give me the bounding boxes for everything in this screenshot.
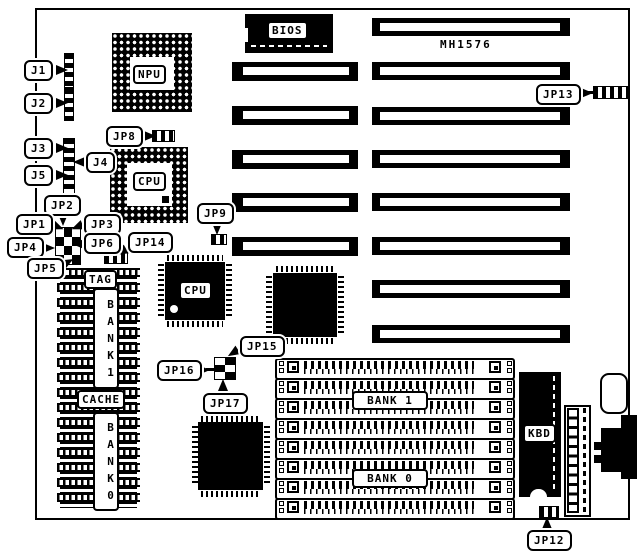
cache-tag-label: TAG <box>84 270 117 289</box>
jp15-jp17-jumper-block[interactable] <box>214 357 236 380</box>
callout-j4: J4 <box>86 151 115 173</box>
callout-pointer-jp13 <box>581 88 593 98</box>
callout-pointer-j4 <box>73 157 85 167</box>
simm-clip-right <box>489 401 501 413</box>
simm-pin-hole <box>507 428 512 433</box>
callout-pointer-jp4 <box>43 243 55 253</box>
qfp-chip2-leads-bottom <box>276 338 334 344</box>
callout-jp17: JP17 <box>203 392 248 414</box>
isa-slot-key <box>380 198 560 206</box>
cache-bank1-label: BANK1 <box>93 288 119 389</box>
simm-pin-hole <box>507 508 512 513</box>
battery-outline <box>600 373 628 414</box>
cpu-qfp-leads-bottom <box>167 321 223 327</box>
simm-pin-hole <box>279 408 284 413</box>
isa-slot-key <box>243 67 349 75</box>
simm-pin-hole <box>279 428 284 433</box>
simm-clip-left <box>287 461 299 473</box>
keyboard-din-connector-body <box>601 428 625 472</box>
simm-pin-hole <box>507 421 512 426</box>
motherboard-layout-diagram: BIOS MH1576 NPU CPU CPU TAG CACHE BANK1 … <box>0 0 637 558</box>
isa-slot-key <box>380 330 560 338</box>
simm-clip-right <box>489 441 501 453</box>
simm-module-pins <box>304 449 474 454</box>
callout-j5: J5 <box>24 164 53 186</box>
isa-slot-right <box>372 193 570 211</box>
callout-j2: J2 <box>24 92 53 114</box>
cpu-qfp-leads-left <box>158 264 164 318</box>
callout-label-j2: J2 <box>24 93 53 114</box>
cpu-qfp-label: CPU <box>179 281 212 300</box>
simm-pin-hole <box>279 508 284 513</box>
callout-jp12: JP12 <box>527 529 572 551</box>
callout-jp4: JP4 <box>7 236 44 258</box>
callout-jp14: JP14 <box>128 231 173 253</box>
isa-slot-right <box>372 325 570 343</box>
callout-j3: J3 <box>24 137 53 159</box>
cpu-socket-label: CPU <box>133 172 166 191</box>
isa-slot-right <box>372 150 570 168</box>
qfp-chip3-leads-bottom <box>201 491 260 497</box>
simm-slot[interactable] <box>275 358 515 380</box>
cpu-qfp-leads-top <box>167 255 223 261</box>
isa-slot-left <box>232 193 358 212</box>
cpu-qfp-leads-right <box>226 264 232 318</box>
isa-slot-right <box>372 280 570 298</box>
callout-pointer-jp6 <box>72 239 84 249</box>
simm-clip-left <box>287 421 299 433</box>
callout-label-jp13: JP13 <box>536 84 581 105</box>
isa-slot-left <box>232 150 358 169</box>
callout-pointer-jp8 <box>144 131 156 141</box>
simm-clip-right <box>489 461 501 473</box>
isa-slot-right <box>372 237 570 255</box>
callout-pointer-j2 <box>56 98 68 108</box>
simm-pin-hole <box>507 441 512 446</box>
callout-label-jp4: JP4 <box>7 237 44 258</box>
simm-pin-hole <box>507 401 512 406</box>
simm-pin-hole <box>507 388 512 393</box>
simm-pin-hole <box>279 441 284 446</box>
callout-jp15: JP15 <box>240 335 285 357</box>
simm-module-chips <box>304 381 474 389</box>
keyboard-din-connector-tab-bottom <box>594 455 603 463</box>
callout-label-jp6: JP6 <box>84 233 121 254</box>
simm-module-pins <box>304 429 474 434</box>
simm-pin-hole <box>279 368 284 373</box>
simm-clip-left <box>287 501 299 513</box>
isa-slot-key <box>380 285 560 293</box>
callout-pointer-jp17 <box>218 379 228 391</box>
callout-label-jp8: JP8 <box>106 126 143 147</box>
simm-pin-hole <box>507 468 512 473</box>
callout-label-jp16: JP16 <box>157 360 202 381</box>
qfp-chip3 <box>198 422 263 490</box>
simm-module-chips <box>304 461 474 469</box>
callout-pointer-jp9 <box>212 223 222 235</box>
simm-clip-left <box>287 381 299 393</box>
callout-label-j5: J5 <box>24 165 53 186</box>
simm-pin-hole <box>507 488 512 493</box>
callout-jp8: JP8 <box>106 125 143 147</box>
simm-module-chips <box>304 421 474 429</box>
callout-pointer-j1 <box>56 65 68 75</box>
isa-slot-right <box>372 62 570 80</box>
simm-clip-left <box>287 441 299 453</box>
simm-clip-left <box>287 481 299 493</box>
memory-bank0-label: BANK 0 <box>352 469 428 488</box>
simm-pin-hole <box>507 501 512 506</box>
isa-slot-left <box>232 237 358 256</box>
kbd-label: KBD <box>523 424 556 443</box>
isa-slot-key <box>243 242 349 250</box>
callout-label-jp17: JP17 <box>203 393 248 414</box>
power-connector-pins <box>567 408 579 513</box>
callout-label-jp1: JP1 <box>16 214 53 235</box>
cache-label: CACHE <box>77 390 125 409</box>
simm-pin-hole <box>279 501 284 506</box>
simm-module-chips <box>304 441 474 449</box>
simm-pin-hole <box>507 448 512 453</box>
callout-jp13: JP13 <box>536 83 581 105</box>
simm-pin-hole <box>507 361 512 366</box>
cache-bank0-label: BANK0 <box>93 412 119 511</box>
simm-slot[interactable] <box>275 498 515 520</box>
callout-pointer-jp12 <box>542 517 552 529</box>
isa-slot-key <box>243 198 349 206</box>
callout-pointer-j3 <box>56 143 68 153</box>
bios-chip-dashed-line <box>251 45 327 47</box>
board-model-label: MH1576 <box>440 38 492 51</box>
qfp-chip2-leads-right <box>338 276 344 334</box>
callout-label-jp5: JP5 <box>27 258 64 279</box>
callout-label-j1: J1 <box>24 60 53 81</box>
callout-label-j3: J3 <box>24 138 53 159</box>
power-connector-key-strip <box>583 408 586 513</box>
simm-clip-right <box>489 361 501 373</box>
simm-pin-hole <box>507 368 512 373</box>
simm-pin-hole <box>279 448 284 453</box>
simm-module-pins <box>304 369 474 374</box>
simm-pin-hole <box>279 381 284 386</box>
simm-pin-hole <box>279 481 284 486</box>
qfp-chip2-leads-left <box>266 276 272 334</box>
callout-jp5: JP5 <box>27 257 64 279</box>
simm-slot[interactable] <box>275 438 515 460</box>
qfp-chip2-leads-top <box>276 266 334 272</box>
simm-pin-hole <box>279 468 284 473</box>
kbd-chip-notch <box>530 489 547 498</box>
isa-slot-key <box>380 112 560 120</box>
callout-label-jp12: JP12 <box>527 530 572 551</box>
isa-slot-left <box>232 62 358 81</box>
callout-jp1: JP1 <box>16 213 53 235</box>
isa-slot-key <box>380 23 560 31</box>
simm-pin-hole <box>279 361 284 366</box>
simm-pin-hole <box>507 408 512 413</box>
callout-j1: J1 <box>24 59 53 81</box>
isa-slot-left <box>232 106 358 125</box>
qfp-chip2 <box>273 273 337 337</box>
callout-label-jp14: JP14 <box>128 232 173 253</box>
callout-label-jp15: JP15 <box>240 336 285 357</box>
simm-pin-hole <box>507 461 512 466</box>
simm-module-chips <box>304 361 474 369</box>
simm-clip-right <box>489 481 501 493</box>
callout-label-jp9: JP9 <box>197 203 234 224</box>
callout-label-j4: J4 <box>86 152 115 173</box>
cpu-qfp-pin1-dot <box>170 305 178 313</box>
simm-pin-hole <box>507 381 512 386</box>
jp9-jumper[interactable] <box>211 234 227 245</box>
simm-clip-right <box>489 381 501 393</box>
simm-pin-hole <box>279 421 284 426</box>
isa-slot-key <box>380 242 560 250</box>
callout-pointer-j5 <box>56 170 68 180</box>
simm-module-pins <box>304 489 474 494</box>
simm-clip-right <box>489 421 501 433</box>
simm-clip-left <box>287 401 299 413</box>
simm-pin-hole <box>279 388 284 393</box>
jp13-jumper[interactable] <box>593 86 628 99</box>
bios-chip-notch <box>243 28 248 42</box>
keyboard-din-connector-tab-top <box>594 442 603 450</box>
callout-jp9: JP9 <box>197 202 234 224</box>
simm-pin-hole <box>279 401 284 406</box>
simm-slot[interactable] <box>275 418 515 440</box>
simm-pin-hole <box>279 488 284 493</box>
isa-slot-right <box>372 107 570 125</box>
npu-label: NPU <box>133 65 166 84</box>
isa-slot-key <box>243 155 349 163</box>
bios-label: BIOS <box>267 21 308 40</box>
qfp-chip3-leads-right <box>264 426 270 486</box>
simm-pin-hole <box>507 481 512 486</box>
isa-slot-key <box>243 111 349 119</box>
simm-module-chips <box>304 501 474 509</box>
callout-jp6: JP6 <box>84 232 121 254</box>
callout-jp16: JP16 <box>157 359 202 381</box>
memory-bank1-label: BANK 1 <box>352 391 428 410</box>
simm-module-pins <box>304 509 474 514</box>
simm-clip-right <box>489 501 501 513</box>
isa-slot-right <box>372 18 570 36</box>
cpu-socket-pin1-mark <box>162 196 169 203</box>
simm-clip-left <box>287 361 299 373</box>
simm-pin-hole <box>279 461 284 466</box>
isa-slot-key <box>380 155 560 163</box>
isa-slot-key <box>380 67 560 75</box>
